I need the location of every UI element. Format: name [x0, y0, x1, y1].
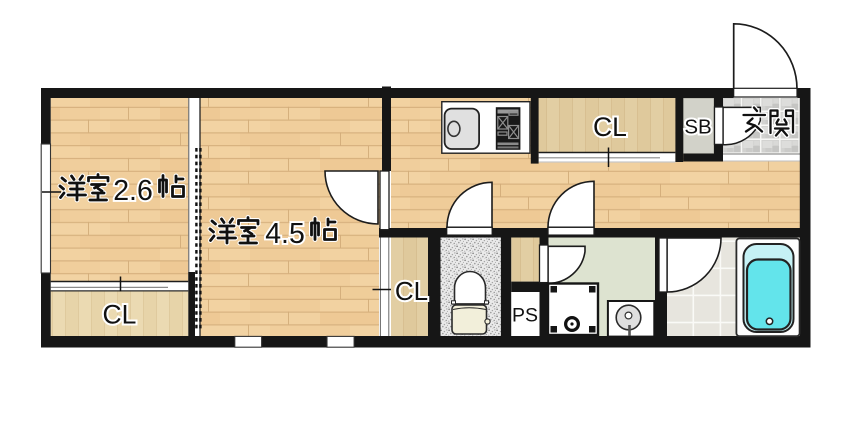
svg-text:SB: SB [684, 116, 711, 139]
svg-text:CL: CL [593, 112, 627, 142]
svg-text:CL: CL [395, 276, 428, 306]
svg-text:CL: CL [103, 300, 137, 330]
svg-text:2.6: 2.6 [113, 175, 153, 207]
svg-text:4.5: 4.5 [265, 218, 305, 250]
svg-text:PS: PS [512, 305, 538, 327]
